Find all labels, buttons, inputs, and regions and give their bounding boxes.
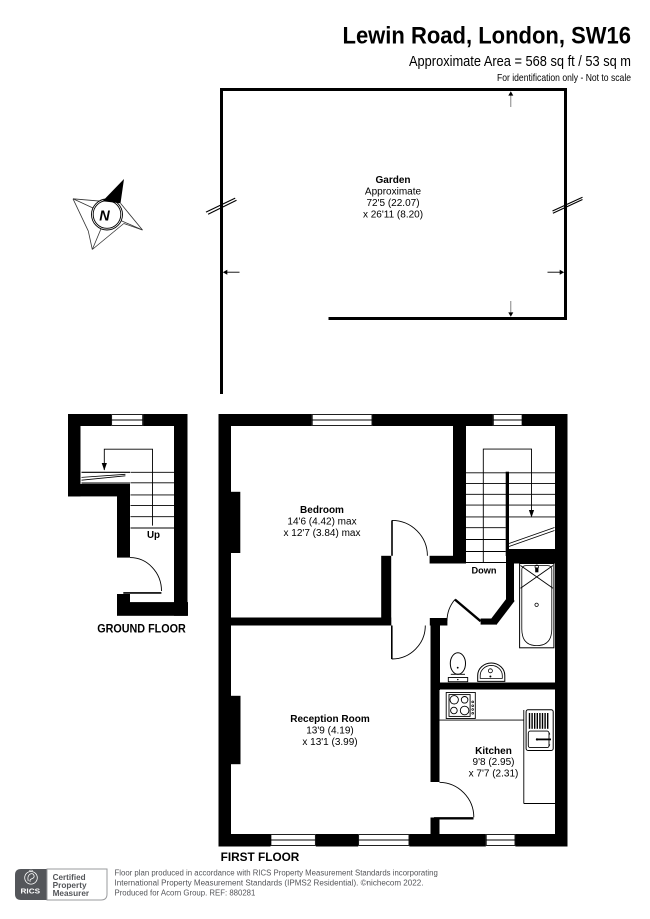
- svg-text:72'5 (22.07): 72'5 (22.07): [366, 198, 419, 209]
- svg-text:9'8 (2.95): 9'8 (2.95): [473, 757, 515, 768]
- svg-text:Bedroom: Bedroom: [300, 505, 344, 516]
- svg-text:Lewin Road, London, SW16: Lewin Road, London, SW16: [343, 23, 632, 50]
- svg-text:GROUND FLOOR: GROUND FLOOR: [97, 622, 186, 636]
- svg-text:Garden: Garden: [375, 175, 410, 186]
- svg-text:Approximate: Approximate: [365, 187, 422, 198]
- svg-text:Approximate Area = 568 sq ft /: Approximate Area = 568 sq ft / 53 sq m: [409, 53, 631, 70]
- svg-text:Floor plan produced in accorda: Floor plan produced in accordance with R…: [115, 869, 438, 878]
- svg-text:x 7'7 (2.31): x 7'7 (2.31): [469, 769, 519, 780]
- svg-text:For identification only - Not: For identification only - Not to scale: [497, 72, 631, 84]
- svg-text:Down: Down: [471, 566, 496, 576]
- svg-text:RICS: RICS: [21, 886, 41, 895]
- svg-text:x 26'11 (8.20): x 26'11 (8.20): [363, 210, 423, 221]
- svg-text:Kitchen: Kitchen: [475, 746, 512, 757]
- svg-text:Reception Room: Reception Room: [290, 714, 370, 725]
- svg-text:International Property Measure: International Property Measurement Stand…: [115, 879, 424, 888]
- svg-text:Produced for Acorn Group. RE: Produced for Acorn Group. REF: 880281: [115, 889, 256, 898]
- svg-text:x 12'7 (3.84) max: x 12'7 (3.84) max: [284, 528, 361, 539]
- svg-text:Measurer: Measurer: [53, 889, 90, 898]
- svg-text:x 13'1 (3.99): x 13'1 (3.99): [302, 737, 357, 748]
- svg-text:13'9 (4.19): 13'9 (4.19): [306, 726, 354, 737]
- svg-text:Up: Up: [147, 530, 160, 541]
- svg-text:FIRST FLOOR: FIRST FLOOR: [221, 850, 300, 864]
- svg-text:14'6 (4.42) max: 14'6 (4.42) max: [287, 517, 356, 528]
- svg-text:N: N: [99, 209, 110, 225]
